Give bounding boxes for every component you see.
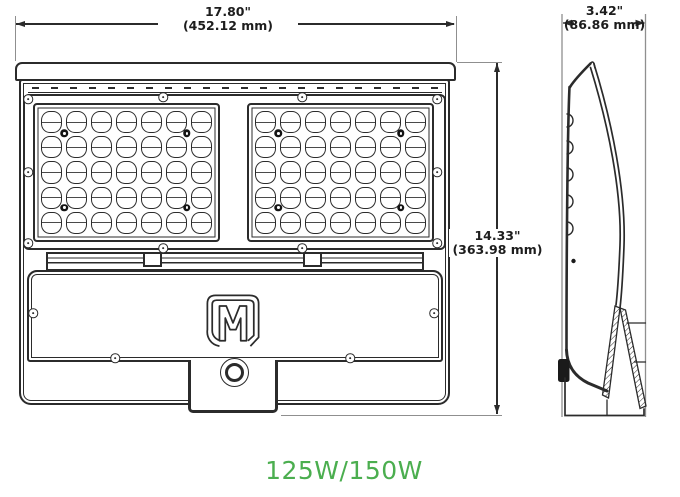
led-lens [330,136,351,158]
screw-icon [297,92,307,102]
module-screw-icon [275,204,283,212]
led-lens [191,111,212,133]
led-lens [355,161,376,183]
led-lens [141,161,162,183]
dimension-arrow [16,21,25,27]
width-mm: (452.12 mm) [158,19,298,33]
led-lens [66,136,87,158]
led-lens [405,136,426,158]
hinge-tab [143,252,162,267]
height-dimension-label: 14.33" (363.98 mm) [449,229,546,257]
module-screw-icon [397,204,405,212]
hinge-strip [46,252,424,271]
side-profile [558,62,646,416]
led-lens [255,161,276,183]
led-lens [355,136,376,158]
led-lens [191,161,212,183]
screw-icon [23,167,33,177]
heat-fins [28,83,442,93]
led-lens [116,187,137,209]
led-lens [305,161,326,183]
led-lens [380,212,401,234]
screw-icon [432,238,442,248]
depth-mm: (86.86 mm) [557,18,652,32]
screw-icon [23,94,33,104]
led-lens [116,212,137,234]
depth-dimension-label: 3.42" (86.86 mm) [557,4,652,32]
led-lens [405,111,426,133]
photocell-knob-inner [225,363,244,382]
dimension-arrow [494,63,500,72]
led-lens [191,187,212,209]
photocell-knob-icon [220,358,249,387]
led-lens [330,111,351,133]
led-lens [41,111,62,133]
width-dimension-label: 17.80" (452.12 mm) [158,5,298,33]
screw-icon [297,243,307,253]
end-cap [558,359,570,382]
dimension-arrow [494,405,500,414]
module-screw-icon [61,204,69,212]
led-lens [330,187,351,209]
screw-icon [110,353,120,363]
led-lens [191,136,212,158]
module-screw-icon [61,130,69,138]
led-module-left [33,103,220,242]
led-lens [66,161,87,183]
led-lens [91,111,112,133]
module-screw-icon [397,130,405,138]
led-lens [355,212,376,234]
screw-icon [432,94,442,104]
led-lens [305,187,326,209]
led-lens [405,161,426,183]
led-lens [255,136,276,158]
led-lens [66,212,87,234]
led-lens [141,187,162,209]
side-view [548,8,660,420]
led-lens [405,212,426,234]
width-inches: 17.80" [158,5,298,19]
led-lens [141,212,162,234]
led-lens [141,136,162,158]
led-lens [380,136,401,158]
depth-inches: 3.42" [557,4,652,18]
led-lens [41,161,62,183]
screw-icon [158,243,168,253]
extension-line [456,16,457,62]
m-logo [203,291,263,349]
led-lens [355,187,376,209]
screw-icon [158,92,168,102]
led-lens [41,136,62,158]
led-lens [41,212,62,234]
led-lens [305,111,326,133]
screw-icon [429,308,439,318]
dimensional-drawing: 17.80" (452.12 mm) 14.33" (363.98 mm) [0,0,680,497]
led-lens [91,161,112,183]
led-lens [280,187,301,209]
led-lens [280,161,301,183]
led-lens [91,187,112,209]
led-lens [330,212,351,234]
dimension-arrow [446,21,455,27]
led-lens [91,136,112,158]
led-lens [166,161,187,183]
led-lens [280,136,301,158]
screw-icon [571,259,575,263]
led-lens [255,212,276,234]
module-screw-icon [183,130,191,138]
led-lens [280,111,301,133]
led-lens [305,212,326,234]
screw-icon [28,308,38,318]
wattage-label: 125W/150W [234,456,454,485]
led-lens [66,111,87,133]
led-lens [41,187,62,209]
led-lens [255,187,276,209]
led-lens [141,111,162,133]
led-lens [116,111,137,133]
led-lens [166,212,187,234]
mounting-bracket [603,306,621,398]
led-lens [191,212,212,234]
led-lens [116,161,137,183]
led-lens [116,136,137,158]
led-lens [380,161,401,183]
led-lens [255,111,276,133]
led-lens [66,187,87,209]
screw-icon [23,238,33,248]
led-lens [330,161,351,183]
extension-line [281,415,502,416]
height-inches: 14.33" [449,229,546,243]
screw-icon [432,167,442,177]
led-lens [355,111,376,133]
screw-icon [345,353,355,363]
module-screw-icon [275,130,283,138]
led-module-right [247,103,434,242]
led-lens [405,187,426,209]
led-lens [91,212,112,234]
led-lens [280,212,301,234]
hinge-tab [303,252,322,267]
led-lens [166,136,187,158]
led-lens [305,136,326,158]
height-mm: (363.98 mm) [449,243,546,257]
module-screw-icon [183,204,191,212]
